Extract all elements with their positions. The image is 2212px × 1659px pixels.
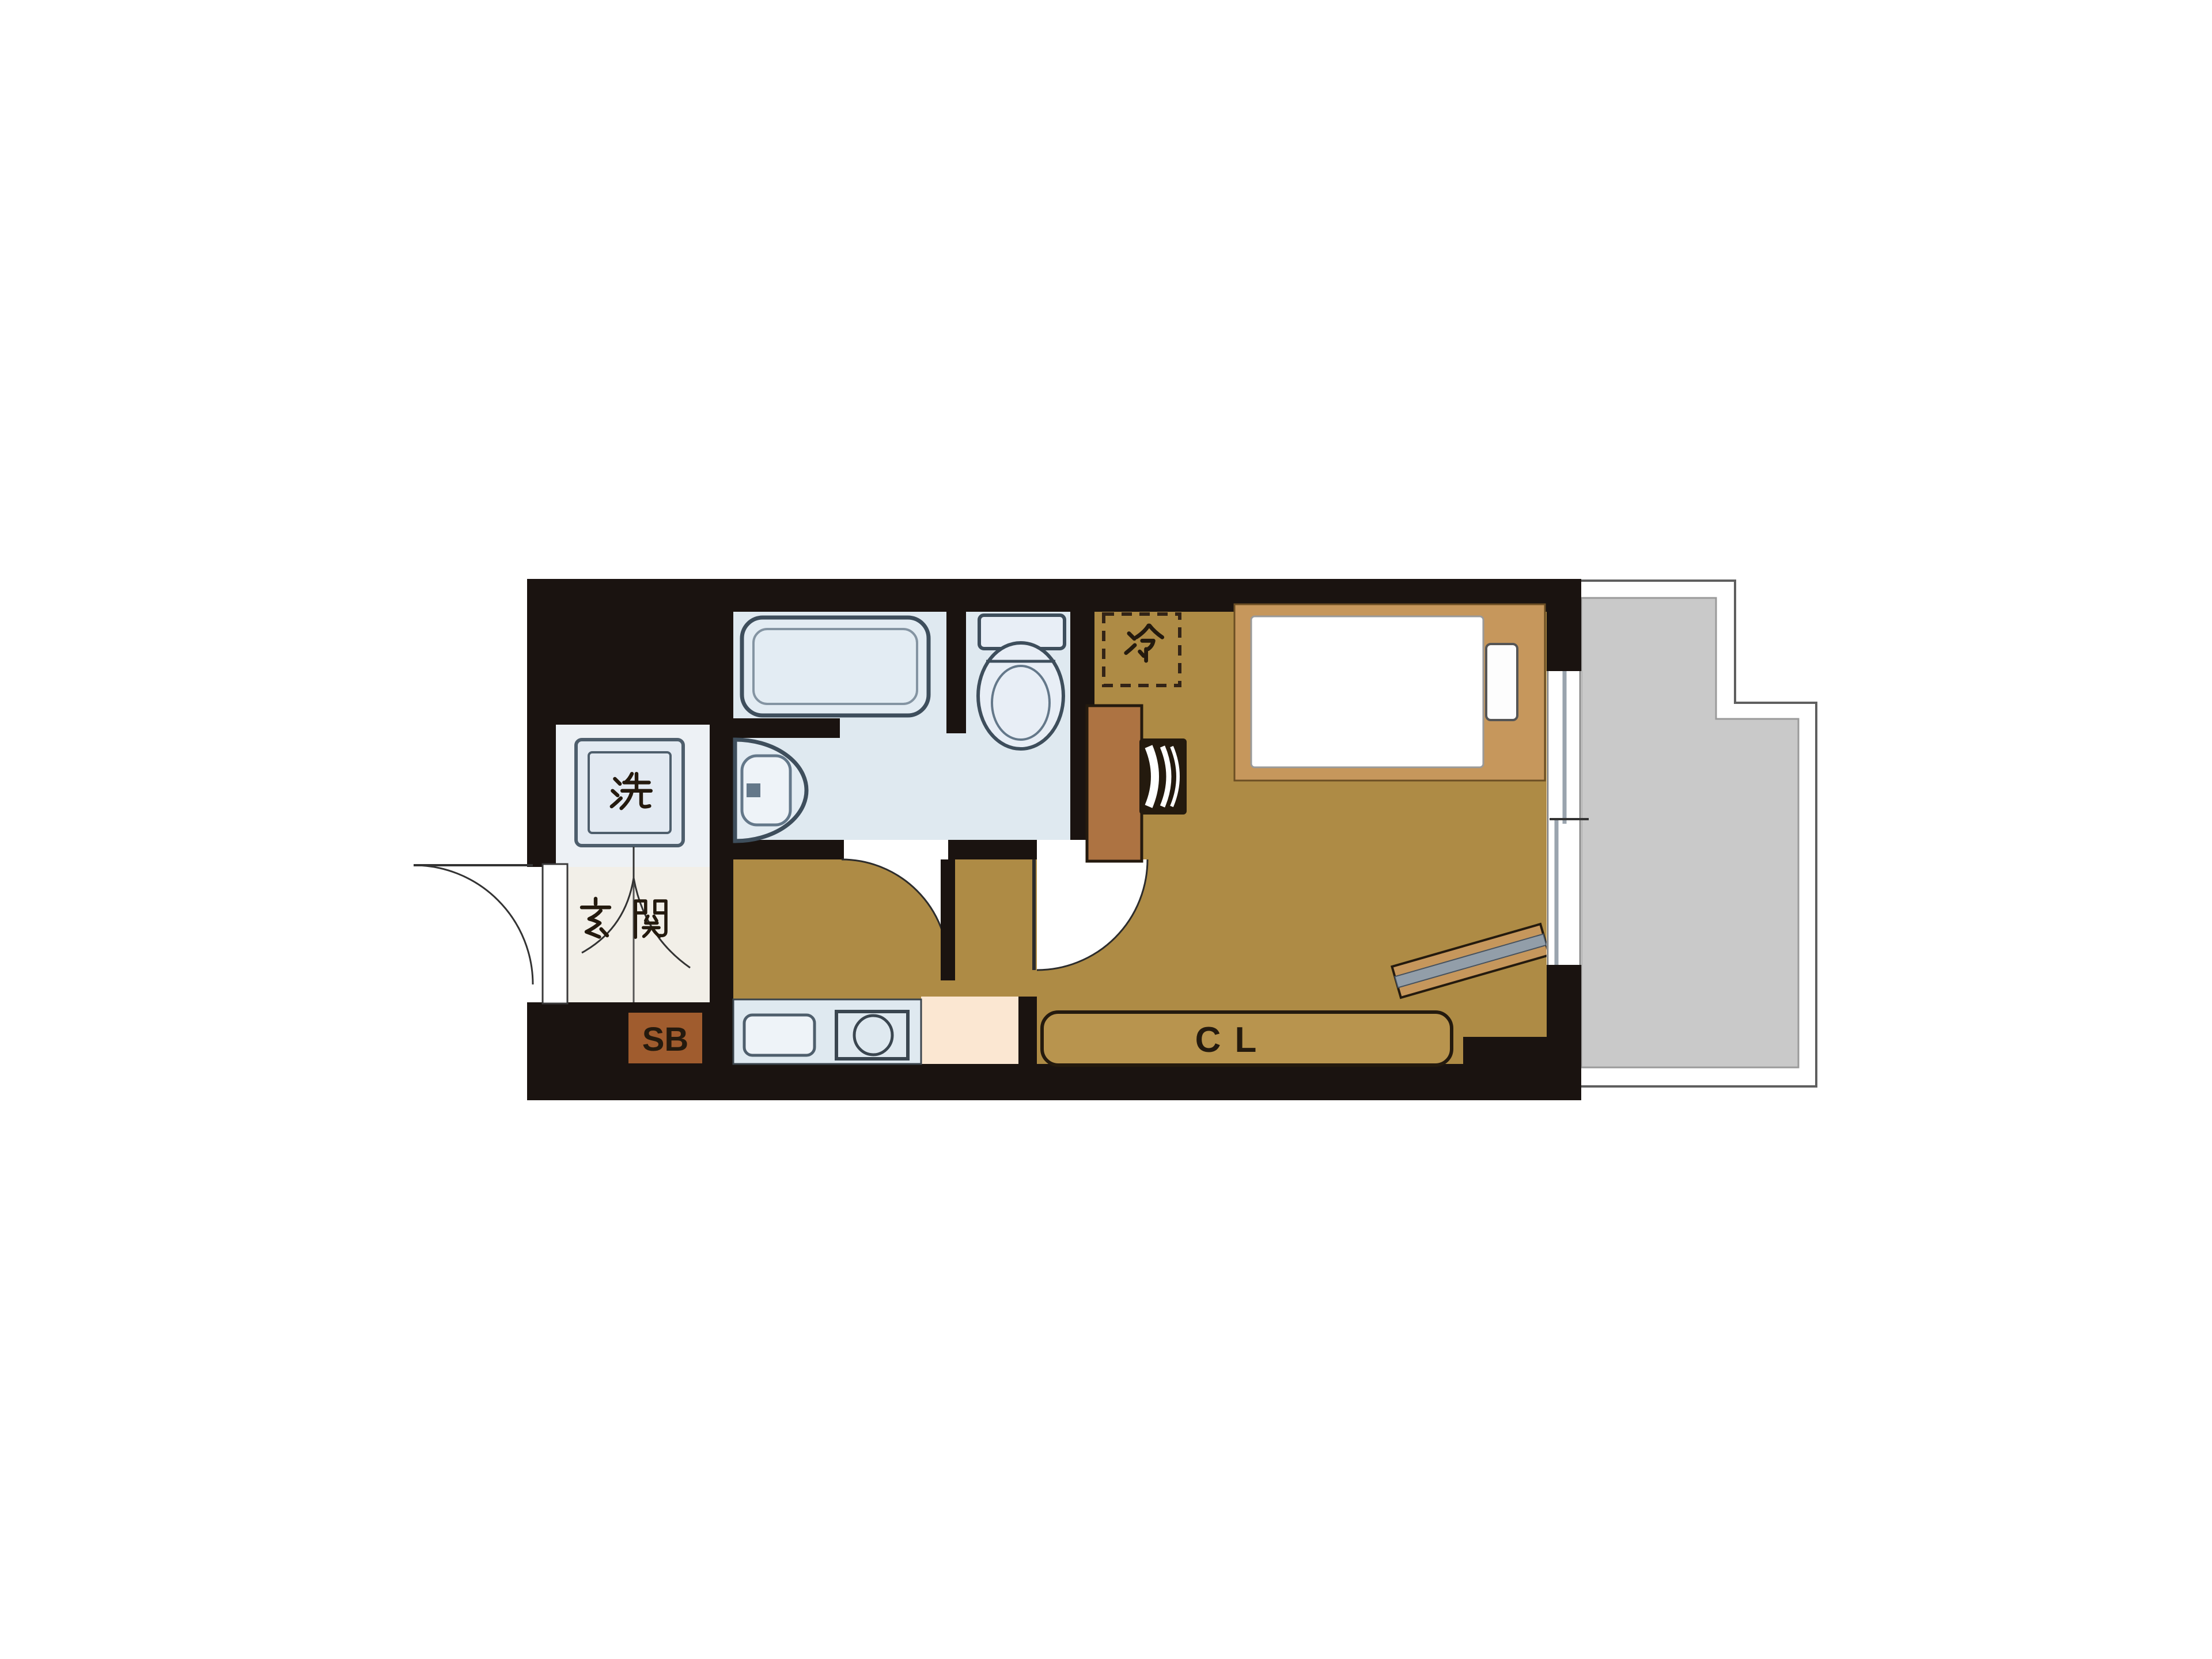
entrance-threshold — [543, 864, 567, 1003]
kitchen — [733, 999, 921, 1064]
floor-plan-svg: SB — [0, 0, 2212, 1659]
front-door-arc — [414, 865, 533, 984]
accordion-curtain-icon — [1139, 738, 1187, 815]
wall-right-upper — [1547, 579, 1581, 671]
wall-top-left-block — [527, 579, 710, 725]
closet-label: CL — [1195, 1020, 1271, 1060]
wall-bath-bottom-right — [948, 840, 1037, 859]
kitchen-sink — [744, 1015, 815, 1055]
laundry — [576, 740, 683, 846]
washbasin-faucet — [747, 783, 760, 797]
wall-bottom-right-block — [1463, 1037, 1581, 1100]
kitchen-floor — [921, 997, 1018, 1064]
wall-bath-bottom-left — [733, 840, 844, 859]
room-doorway-gap — [1037, 840, 1087, 859]
balcony — [1581, 581, 1816, 1086]
wall-tub-apron — [733, 718, 840, 738]
wall-entry-column — [710, 612, 733, 1100]
toilet — [978, 615, 1065, 749]
stove — [836, 1012, 908, 1059]
floor-plan-page: 洗 玄関 冷 — [0, 0, 2212, 1659]
shoe-box-label: SB — [642, 1021, 689, 1058]
balcony-floor — [1581, 598, 1798, 1067]
wall-bottom — [733, 1064, 1581, 1100]
hallway-floor — [733, 859, 1037, 999]
bathroom-door-leaf — [941, 859, 955, 980]
bathtub — [742, 618, 929, 715]
closet: CL — [1042, 1012, 1452, 1065]
pillow — [1486, 644, 1517, 720]
counter-cabinet — [1087, 706, 1142, 861]
toilet-bowl — [978, 643, 1063, 749]
wall-left-laundry — [527, 725, 556, 867]
mattress — [1251, 616, 1483, 767]
bed — [1234, 604, 1545, 781]
wall-toilet-partition — [946, 612, 966, 733]
wall-kitchen-stub — [1018, 997, 1037, 1064]
